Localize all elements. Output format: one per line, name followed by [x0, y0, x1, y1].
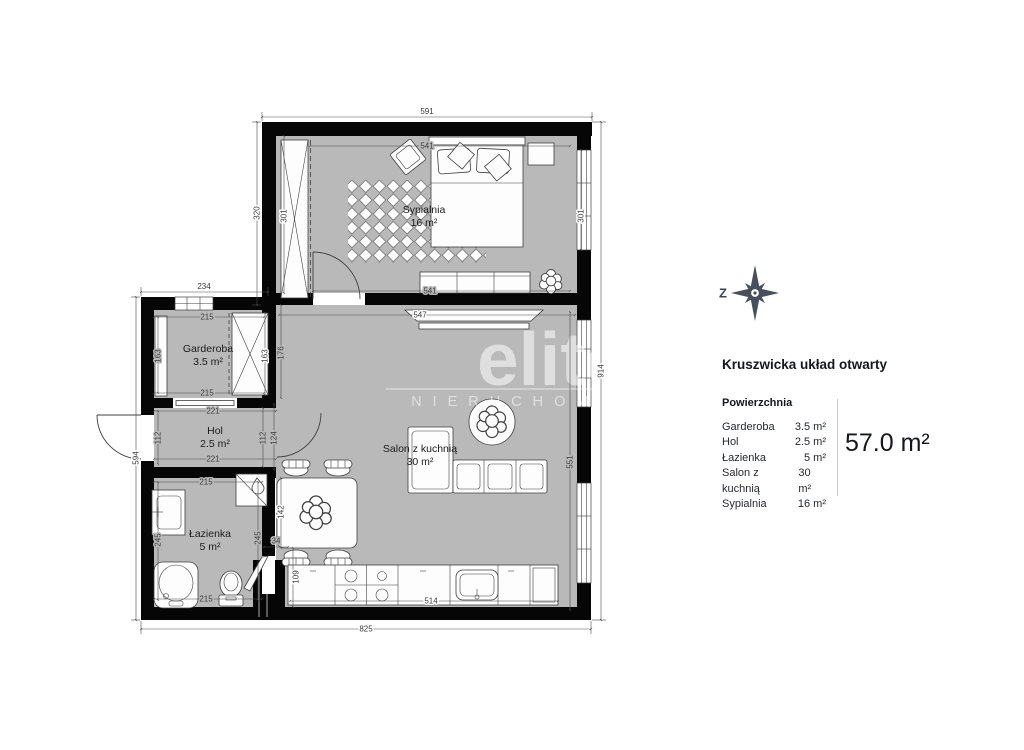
dim-hol-height-right2: 124	[270, 431, 279, 445]
dim-garderoba-height-left: 163	[154, 349, 163, 363]
areas-header: Powierzchnia	[722, 397, 792, 409]
dim-garderoba-width-bottom: 215	[200, 389, 214, 398]
area-row: Łazienka 5 m²	[722, 451, 826, 466]
dim-shaft-width: 34	[272, 537, 281, 546]
watermark-subtitle: NIERUCHOMOŚCI	[411, 392, 679, 410]
dim-hol-height-left: 112	[154, 431, 163, 444]
area-value: 5 m²	[804, 451, 826, 466]
dim-bath-width-top: 215	[199, 478, 213, 487]
salon-window-2	[577, 483, 591, 583]
area-value: 3.5 m²	[795, 420, 826, 435]
dim-kitchen-counter: 514	[424, 597, 438, 606]
dim-shaft-height: 109	[292, 570, 301, 584]
dim-bedroom-window: 301	[577, 209, 586, 223]
hol-area: 2.5 m²	[200, 438, 230, 450]
area-row: Sypialnia 16 m²	[722, 497, 826, 512]
bathtub	[154, 562, 198, 608]
garderoba-area: 3.5 m²	[193, 356, 223, 368]
area-value: 16 m²	[798, 497, 826, 512]
dim-garderoba-block-width: 234	[197, 282, 211, 291]
floorplan-page: elite NIERUCHOMOŚCI	[0, 0, 1024, 750]
compass-west-label: Z	[719, 286, 727, 301]
dim-garderoba-height-right: 163	[261, 349, 270, 363]
area-value: 30 m²	[798, 466, 826, 497]
area-row: Salon z kuchnią 30 m²	[722, 466, 826, 497]
salon-area: 30 m²	[407, 456, 434, 468]
kitchen-counter	[288, 565, 558, 605]
floor-plan: elite NIERUCHOMOŚCI	[0, 0, 1024, 750]
bedroom-name: Sypialnia	[403, 204, 446, 216]
compass-star	[731, 265, 779, 321]
area-label: Garderoba	[722, 420, 775, 435]
dim-salon-windows: 551	[566, 455, 575, 469]
dim-left-height: 594	[132, 451, 141, 465]
dim-salon-left-niche: 176	[277, 346, 286, 360]
salon-name: Salon z kuchnią	[383, 443, 457, 455]
dim-bath-height-left: 245	[154, 533, 163, 547]
toilet	[219, 571, 243, 606]
total-area: 57.0 m²	[845, 429, 930, 458]
divider	[837, 399, 838, 496]
dim-hol-width-bottom: 221	[206, 455, 220, 464]
dim-dining-table: 142	[277, 505, 286, 519]
dim-salon-width-top: 547	[413, 311, 427, 320]
dim-bedroom-height-inner: 301	[280, 209, 289, 223]
plan-title: Kruszwicka układ otwarty	[722, 357, 887, 372]
bed	[429, 137, 525, 247]
dim-hol-height-right: 112	[259, 431, 268, 444]
dim-right-height: 914	[597, 364, 606, 378]
compass-rose-icon: Z	[709, 260, 801, 326]
hol-name: Hol	[207, 425, 223, 437]
area-label: Sypialnia	[722, 497, 767, 512]
kitchen-sink	[456, 570, 498, 600]
bedroom-area: 16 m²	[411, 217, 438, 229]
shower	[236, 474, 267, 506]
garderoba-sliding-door	[176, 401, 234, 406]
dim-top-width: 591	[420, 107, 434, 116]
area-label: Łazienka	[722, 451, 766, 466]
area-row: Garderoba 3.5 m²	[722, 420, 826, 435]
garderoba-window	[175, 297, 213, 310]
dim-bath-height-right: 245	[254, 531, 263, 545]
areas-table: Garderoba 3.5 m² Hol 2.5 m² Łazienka 5 m…	[722, 420, 826, 512]
dim-bedroom-height-outer: 320	[253, 206, 262, 220]
bathroom-area: 5 m²	[200, 541, 222, 553]
area-label: Salon z kuchnią	[722, 466, 798, 497]
dim-garderoba-width-top: 215	[200, 313, 214, 322]
garderoba-name: Garderoba	[183, 343, 233, 355]
area-row: Hol 2.5 m²	[722, 435, 826, 450]
dim-hol-width-top: 221	[206, 407, 220, 416]
dim-bottom-width: 825	[359, 625, 373, 634]
bedroom-window	[577, 150, 591, 250]
bathroom-name: Łazienka	[189, 528, 231, 540]
area-value: 2.5 m²	[795, 435, 826, 450]
dim-bedroom-inner-top: 541	[420, 142, 434, 151]
area-label: Hol	[722, 435, 739, 450]
bathroom-sink	[152, 490, 185, 535]
dim-bedroom-inner-bottom: 541	[423, 287, 437, 296]
dim-bath-width-bottom: 215	[199, 595, 213, 604]
